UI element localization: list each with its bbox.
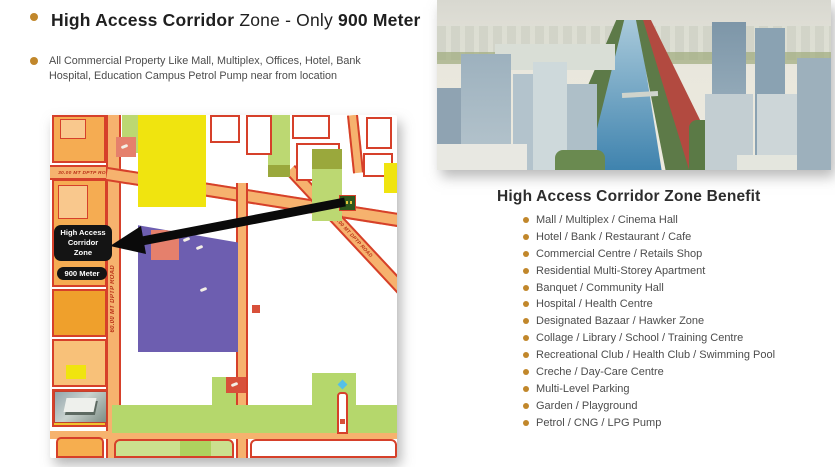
benefit-item-label: Multi-Level Parking: [536, 383, 630, 395]
page-title-bold-tail: 900 Meter: [338, 10, 421, 30]
benefit-item: Commercial Centre / Retails Shop: [523, 248, 775, 260]
benefit-list: Mall / Multiplex / Cinema HallHotel / Ba…: [523, 214, 775, 434]
benefit-item: Designated Bazaar / Hawker Zone: [523, 315, 775, 327]
bullet-icon: [523, 318, 529, 324]
benefit-item-label: Commercial Centre / Retails Shop: [536, 248, 702, 260]
benefit-item: Petrol / CNG / LPG Pump: [523, 417, 775, 429]
benefit-item: Residential Multi-Storey Apartment: [523, 265, 775, 277]
city-lowrise-foreground: [437, 144, 527, 170]
bullet-icon: [523, 251, 529, 257]
benefit-item-label: Designated Bazaar / Hawker Zone: [536, 315, 704, 327]
benefit-item-label: Creche / Day-Care Centre: [536, 366, 664, 378]
benefit-item-label: Mall / Multiplex / Cinema Hall: [536, 214, 678, 226]
benefit-item: Mall / Multiplex / Cinema Hall: [523, 214, 775, 226]
zone-label-line: Zone: [55, 248, 111, 258]
benefit-item: Creche / Day-Care Centre: [523, 366, 775, 378]
arrow-head: [110, 226, 146, 254]
bullet-icon: [523, 335, 529, 341]
benefit-item-label: Petrol / CNG / LPG Pump: [536, 417, 661, 429]
benefit-item: Garden / Playground: [523, 400, 775, 412]
benefit-item-label: Banquet / Community Hall: [536, 282, 664, 294]
benefit-item-label: Recreational Club / Health Club / Swimmi…: [536, 349, 775, 361]
page-title: High Access Corridor Zone - Only 900 Met…: [51, 10, 421, 31]
page-title-regular: Zone - Only: [234, 10, 338, 30]
distance-label: 900 Meter: [57, 267, 107, 280]
bullet-icon: [523, 420, 529, 426]
distance-arrow: [50, 115, 397, 458]
bullet-icon: [523, 386, 529, 392]
bullet-icon: [523, 301, 529, 307]
arrow-shaft: [142, 202, 345, 241]
intro-subtext: All Commercial Property Like Mall, Multi…: [49, 54, 405, 84]
benefit-item-label: Hotel / Bank / Restaurant / Cafe: [536, 231, 691, 243]
bullet-icon: [523, 217, 529, 223]
benefit-item-label: Residential Multi-Storey Apartment: [536, 265, 705, 277]
benefit-item-label: Collage / Library / School / Training Ce…: [536, 332, 743, 344]
city-trees: [555, 150, 605, 170]
zone-label: High Access Corridor Zone: [54, 225, 112, 261]
zone-label-line: High Access: [55, 228, 111, 238]
city-lowrise-foreground: [737, 155, 797, 170]
benefit-item: Hospital / Health Centre: [523, 298, 775, 310]
zoning-map: 30.00 MT DPTP ROAD 60.00 MT DPTP ROAD 30…: [50, 115, 397, 458]
benefit-item: Recreational Club / Health Club / Swimmi…: [523, 349, 775, 361]
zone-label-line: Corridor: [55, 238, 111, 248]
intro-heading-row: High Access Corridor Zone - Only 900 Met…: [30, 10, 421, 31]
intro-subtext-row: All Commercial Property Like Mall, Multi…: [30, 54, 405, 84]
bullet-icon: [523, 369, 529, 375]
city-building: [797, 58, 831, 170]
bullet-icon: [523, 403, 529, 409]
benefit-item: Banquet / Community Hall: [523, 282, 775, 294]
benefit-item: Multi-Level Parking: [523, 383, 775, 395]
benefit-item: Hotel / Bank / Restaurant / Cafe: [523, 231, 775, 243]
bullet-icon: [30, 57, 38, 65]
bullet-icon: [523, 268, 529, 274]
bullet-icon: [523, 285, 529, 291]
benefits-title: High Access Corridor Zone Benefit: [497, 188, 827, 206]
benefit-item-label: Garden / Playground: [536, 400, 638, 412]
bullet-icon: [523, 352, 529, 358]
city-render-photo: [437, 0, 831, 170]
benefit-item-label: Hospital / Health Centre: [536, 298, 653, 310]
bullet-icon: [30, 13, 38, 21]
page-title-bold-lead: High Access Corridor: [51, 10, 234, 30]
bullet-icon: [523, 234, 529, 240]
benefits-section: High Access Corridor Zone Benefit Mall /…: [497, 188, 827, 206]
benefit-item: Collage / Library / School / Training Ce…: [523, 332, 775, 344]
